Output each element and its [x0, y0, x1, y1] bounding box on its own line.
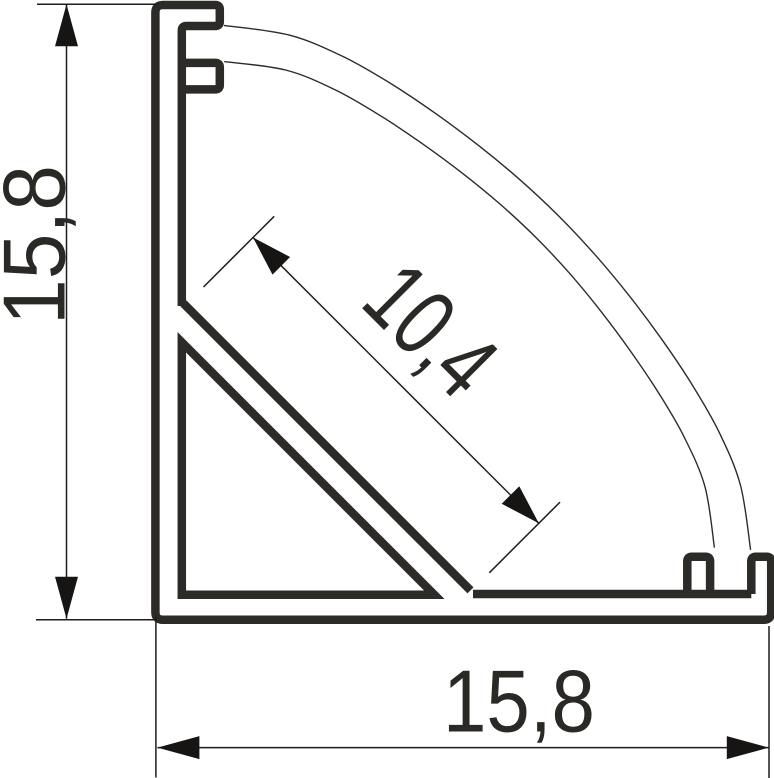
svg-text:15,8: 15,8 — [443, 652, 595, 751]
svg-text:15,8: 15,8 — [0, 165, 84, 325]
